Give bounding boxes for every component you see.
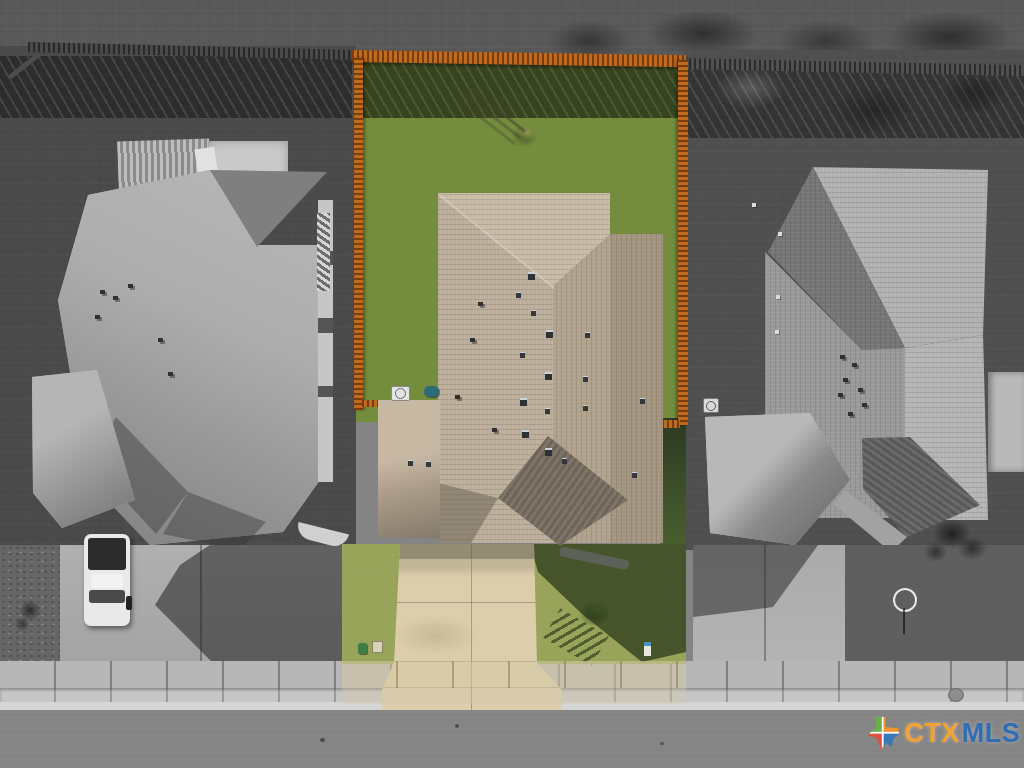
truck-roof bbox=[91, 574, 123, 588]
roof-vent bbox=[516, 292, 521, 298]
roof-vent bbox=[583, 405, 588, 411]
roof-vent bbox=[100, 290, 105, 294]
roof-vent bbox=[585, 332, 590, 338]
roof-vent bbox=[545, 448, 552, 456]
roof-vent bbox=[408, 460, 413, 466]
street-speck bbox=[455, 724, 459, 728]
backyard-fence-left bbox=[354, 58, 363, 410]
roof-vent bbox=[520, 398, 527, 406]
roof-vent bbox=[632, 472, 637, 478]
aerial-photo-scene: CTXMLS bbox=[0, 0, 1024, 768]
street-speck bbox=[660, 742, 664, 745]
roof-vent bbox=[546, 330, 553, 338]
right-front-bush bbox=[915, 505, 997, 577]
pipe-vent bbox=[470, 338, 475, 342]
backyard-fence-right bbox=[678, 60, 688, 425]
roof-vent bbox=[778, 232, 782, 236]
center-backyard-tree-shadow-band bbox=[360, 60, 682, 118]
backyard-kiddie-pool bbox=[424, 386, 439, 397]
pickup-truck bbox=[82, 534, 132, 626]
center-garage-wing-roof bbox=[378, 400, 440, 538]
pipe-vent bbox=[478, 302, 483, 306]
utility-marker-blue bbox=[644, 642, 651, 656]
truck-wheel bbox=[126, 596, 132, 610]
center-sidewalk-tint bbox=[342, 661, 686, 688]
truck-bed bbox=[88, 538, 126, 570]
roof-vent bbox=[838, 393, 843, 397]
center-ac-unit bbox=[391, 386, 410, 401]
roof-vent bbox=[128, 284, 133, 288]
watermark-brand-suffix: MLS bbox=[962, 718, 1021, 749]
roof-vent bbox=[522, 430, 529, 438]
center-curb-tint bbox=[342, 688, 686, 704]
roof-vent bbox=[752, 203, 756, 207]
watermark: CTXMLS bbox=[864, 708, 1020, 758]
roof-vent bbox=[583, 376, 588, 382]
backyard-tree bbox=[505, 118, 545, 154]
street-speck bbox=[320, 738, 325, 742]
roof-vent bbox=[848, 412, 853, 416]
roof-vent bbox=[843, 378, 848, 382]
roof-vent bbox=[545, 372, 552, 380]
manhole-cover bbox=[948, 688, 964, 702]
roof-vent bbox=[562, 458, 567, 464]
roof-vent bbox=[775, 330, 779, 334]
roof-vent bbox=[545, 408, 550, 414]
pipe-vent bbox=[455, 395, 460, 399]
right-house-ac-unit bbox=[703, 398, 719, 413]
texas-state-icon bbox=[864, 713, 902, 753]
roof-vent bbox=[640, 398, 645, 404]
roof-vent bbox=[528, 272, 535, 280]
right-neighbor-shed bbox=[988, 372, 1024, 472]
roof-vent bbox=[168, 372, 173, 376]
roof-vent bbox=[113, 296, 118, 300]
roof-vent bbox=[95, 315, 100, 319]
left-front-tree bbox=[10, 592, 50, 638]
left-house-stair-rail bbox=[317, 213, 330, 291]
hoop-pole-shadow bbox=[903, 608, 905, 634]
left-fence-shadow-band bbox=[0, 56, 352, 118]
utility-box-cream bbox=[372, 641, 383, 653]
roof-vent bbox=[858, 388, 863, 392]
roof-vent bbox=[531, 310, 536, 316]
pipe-vent bbox=[492, 428, 497, 432]
ac-fan-icon bbox=[706, 401, 716, 411]
roof-vent bbox=[862, 403, 867, 407]
roof-vent bbox=[520, 352, 525, 358]
roof-vent bbox=[852, 363, 857, 367]
basketball-hoop bbox=[893, 588, 917, 612]
truck-windshield bbox=[89, 590, 125, 603]
roof-vent bbox=[158, 338, 163, 342]
roof-vent bbox=[426, 461, 431, 467]
ac-fan-icon bbox=[395, 388, 406, 399]
watermark-brand-prefix: CTX bbox=[904, 718, 960, 749]
utility-box-green bbox=[358, 643, 367, 654]
roof-vent bbox=[840, 355, 845, 359]
roof-vent bbox=[776, 295, 780, 299]
